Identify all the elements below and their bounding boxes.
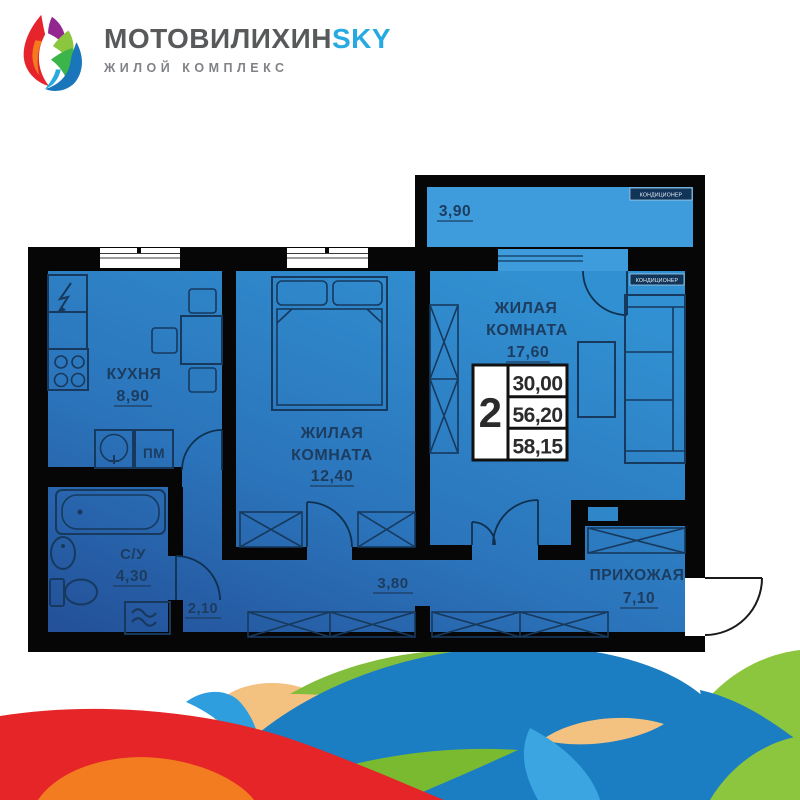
ac-label-living: КОНДИЦИОНЕР [630, 274, 684, 285]
ac-label-balcony: КОНДИЦИОНЕР [630, 188, 692, 200]
bedroom-name-line2: КОМНАТА [291, 447, 373, 464]
entry-door-swing [705, 578, 762, 635]
bathtub-drain [78, 510, 83, 515]
small-corridor-area-label: 2,10 [188, 601, 218, 617]
apartment-stats-box: 2 30,00 56,20 58,15 [473, 365, 567, 460]
balcony-area-label: 3,90 [439, 203, 471, 220]
wall-niche-inset [588, 507, 618, 521]
balcony-threshold [498, 249, 628, 271]
dishwasher-label: ПМ [143, 446, 165, 461]
stats-rooms-count: 2 [479, 389, 502, 436]
bathroom-name-label: С/У [120, 546, 146, 563]
entry-door [685, 578, 762, 636]
bathroom-area-label: 4,30 [116, 568, 148, 585]
hallway-name-label: ПРИХОЖАЯ [590, 567, 685, 584]
floor-plan-canvas: ПМ [0, 0, 800, 800]
decorative-waves [0, 646, 800, 800]
floor-plan: ПМ [28, 175, 762, 652]
page: МОТОВИЛИХИНSKY ЖИЛОЙ КОМПЛЕКС [0, 0, 800, 800]
corridor-area-label: 3,80 [377, 575, 408, 592]
ac-label-text: КОНДИЦИОНЕР [636, 278, 679, 284]
stats-living-area: 30,00 [512, 373, 562, 396]
washbasin-tap [61, 544, 65, 548]
bedroom-name-line1: ЖИЛАЯ [300, 425, 364, 442]
living-name-line2: КОМНАТА [486, 322, 568, 339]
kitchen-area-label: 8,90 [116, 388, 149, 405]
bedroom-area-label: 12,40 [311, 468, 354, 485]
living-area-label: 17,60 [507, 344, 550, 361]
stats-total-area: 58,15 [512, 436, 563, 459]
living-name-line1: ЖИЛАЯ [494, 300, 558, 317]
stats-area: 56,20 [512, 404, 562, 427]
ac-label-text: КОНДИЦИОНЕР [640, 193, 683, 199]
entry-opening [685, 578, 705, 636]
kitchen-name-label: КУХНЯ [107, 366, 162, 383]
hallway-area-label: 7,10 [623, 590, 655, 607]
